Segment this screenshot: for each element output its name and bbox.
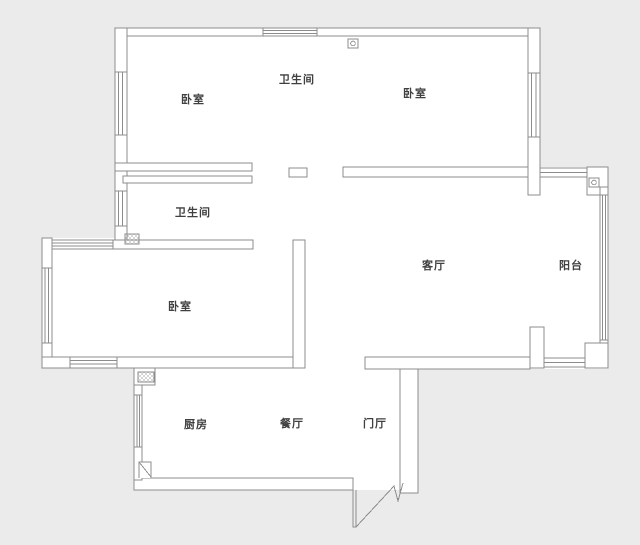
room-label-balcony: 阳台: [559, 257, 583, 273]
room-label-bedroom-top-left: 卧室: [181, 91, 205, 107]
room-label-dining-room: 餐厅: [280, 415, 304, 431]
room-label-bathroom-top: 卫生间: [279, 71, 315, 87]
room-label-bedroom-left: 卧室: [168, 298, 192, 314]
room-label-bathroom-middle: 卫生间: [175, 204, 211, 220]
floor-plan: 卧室 卫生间 卧室 卫生间 客厅 阳台 卧室 厨房 餐厅 门厅: [0, 0, 640, 545]
room-label-living-room: 客厅: [422, 257, 446, 273]
room-label-bedroom-top-right: 卧室: [403, 85, 427, 101]
room-label-kitchen: 厨房: [184, 416, 208, 432]
floor-plan-drawing: [0, 0, 640, 545]
kitchen-door-icon: [139, 462, 151, 478]
room-label-foyer: 门厅: [363, 415, 387, 431]
